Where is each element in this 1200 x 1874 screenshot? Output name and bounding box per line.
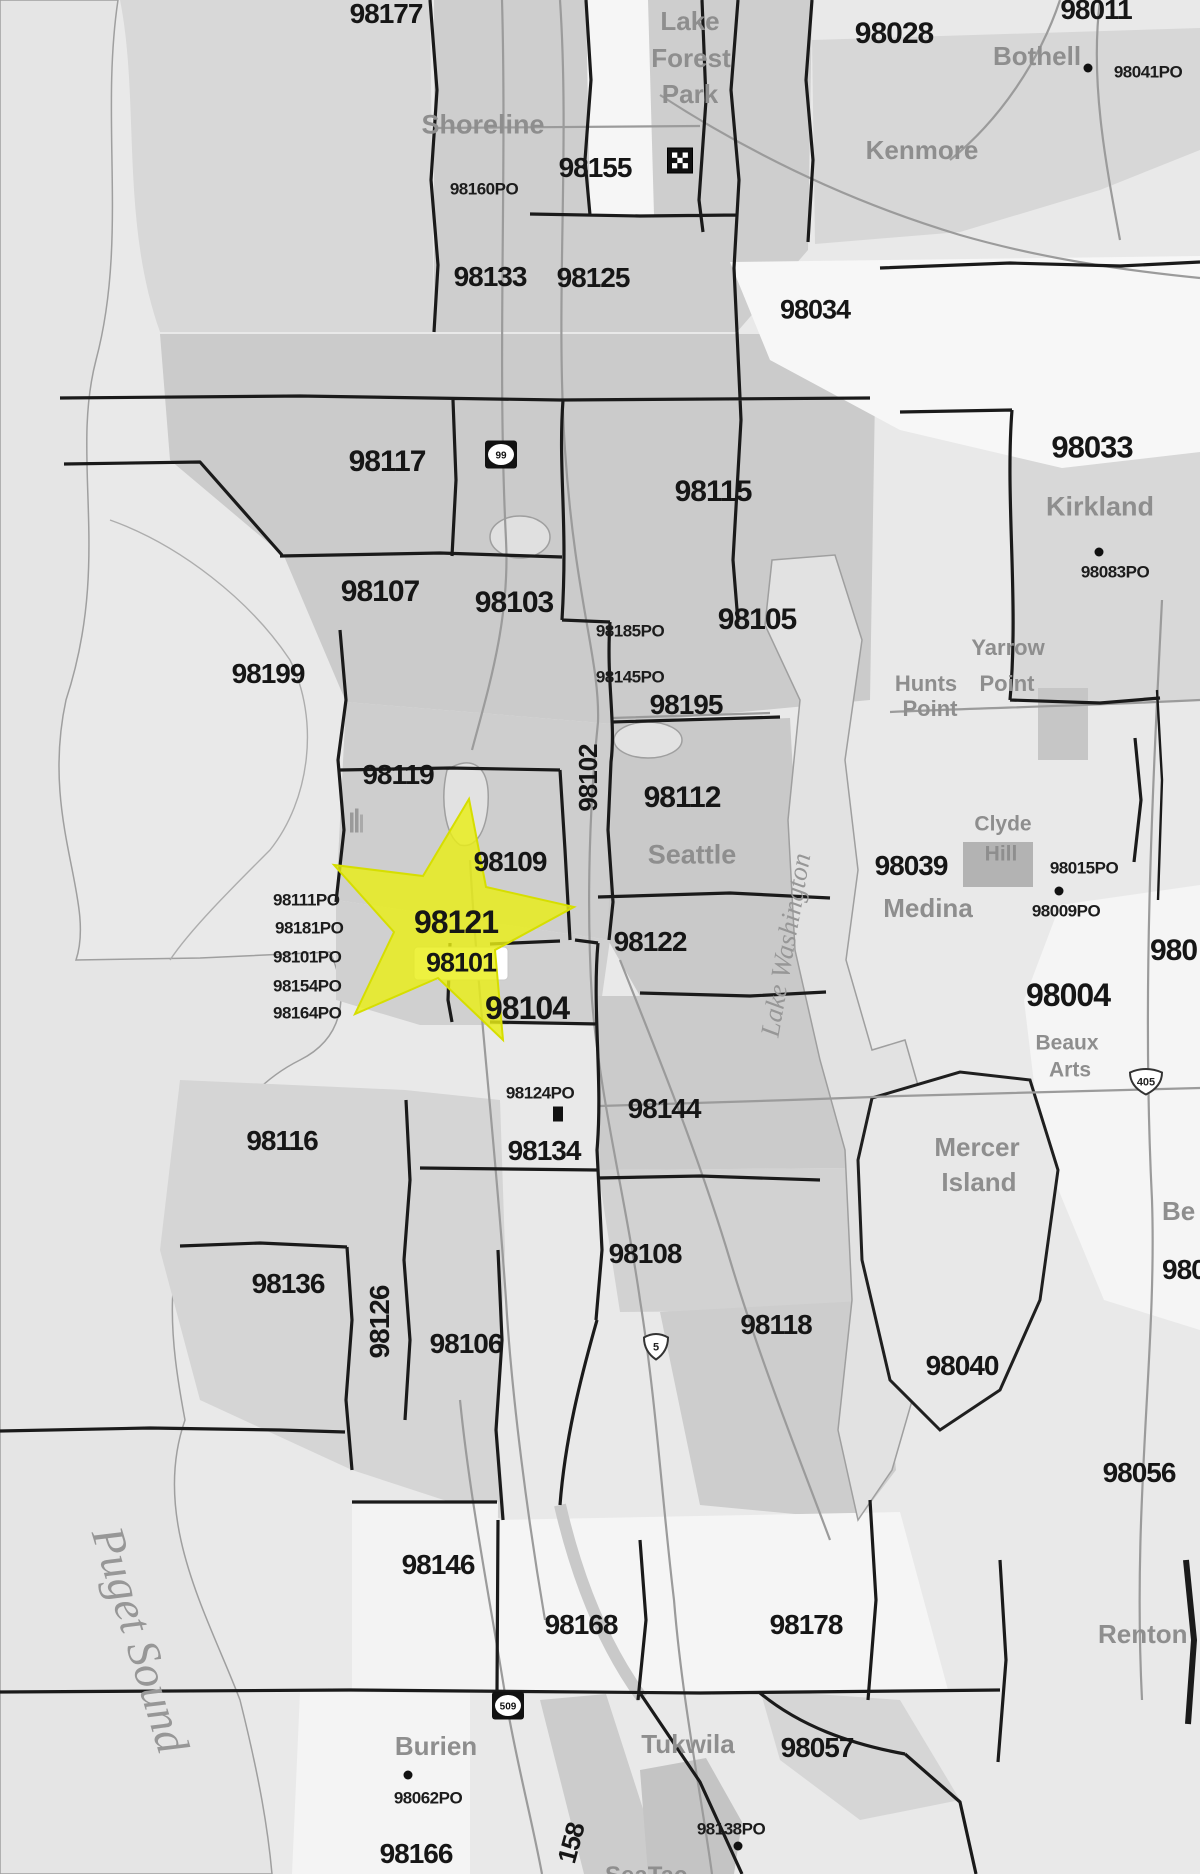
city-label: Shoreline [421, 112, 544, 139]
zip-label: 98028 [855, 19, 933, 49]
zip-label: 98033 [1051, 432, 1132, 463]
zip-label: 98119 [362, 761, 433, 789]
city-label: Tukwila [641, 1731, 734, 1757]
zip-label: 98146 [402, 1551, 475, 1579]
zip-code-map: const data = JSON.parse(document.getElem… [0, 0, 1200, 1874]
zip-label: 980 [1150, 936, 1197, 966]
zip-label: 98101 [426, 950, 496, 977]
zip-label: 98121 [414, 906, 498, 938]
zip-label: 98125 [557, 264, 630, 292]
zip-label: 98126 [366, 1286, 394, 1359]
zip-label: 98004 [1026, 979, 1110, 1011]
city-label: Park [662, 81, 718, 107]
po-label: 98185PO [596, 623, 664, 640]
checkered-route-marker-icon [667, 148, 693, 179]
zip-label: 98144 [628, 1095, 701, 1123]
city-label: Kirkland [1046, 494, 1154, 521]
city-label: Island [941, 1169, 1016, 1195]
city-label: Mercer [934, 1134, 1019, 1160]
interstate-5-shield-icon: 5 [642, 1331, 670, 1366]
svg-text:5: 5 [653, 1342, 659, 1354]
zip-label: 98040 [926, 1352, 999, 1380]
zip-label: 98177 [350, 0, 423, 28]
po-location-marker [1055, 887, 1064, 896]
city-label: SeaTac [605, 1864, 687, 1874]
po-label: 98154PO [273, 978, 341, 995]
zip-label: 98056 [1103, 1459, 1176, 1487]
po-location-marker [734, 1842, 743, 1851]
zip-label: 980 [1162, 1256, 1200, 1284]
zip-label: 98118 [740, 1311, 811, 1339]
zip-label: 98106 [430, 1330, 503, 1358]
union-bay [614, 722, 682, 758]
po-label: 98164PO [273, 1005, 341, 1022]
zip-label: 98117 [349, 447, 426, 477]
zip-label: 98115 [675, 477, 752, 507]
zip-label: 98122 [614, 928, 687, 956]
state-route-509-shield-icon: 509 [491, 1691, 525, 1726]
po-location-marker [1095, 548, 1104, 557]
city-label: Renton [1098, 1621, 1188, 1647]
city-label: Kenmore [866, 137, 979, 163]
po-label: 98009PO [1032, 903, 1100, 920]
city-label: Point [980, 673, 1035, 695]
state-route-99-shield-icon: 99 [484, 440, 518, 475]
svg-text:99: 99 [495, 451, 507, 462]
zip-label: 98168 [545, 1611, 618, 1639]
po-location-marker [404, 1771, 413, 1780]
zip-label: 98166 [380, 1840, 453, 1868]
po-location-marker [553, 1107, 563, 1122]
zip-label: 98109 [474, 848, 547, 876]
zip-label: 98011 [1060, 0, 1131, 24]
zip-label: 98155 [559, 154, 632, 182]
po-label: 98015PO [1050, 860, 1118, 877]
landmark-building-icon [348, 809, 364, 840]
svg-text:405: 405 [1137, 1077, 1155, 1089]
zip-label: 98102 [575, 744, 601, 811]
zip-label: 98057 [781, 1734, 854, 1762]
city-label: Hunts [895, 673, 957, 695]
zip-label: 98112 [644, 783, 721, 813]
city-label: Point [903, 698, 958, 720]
zip-label: 98136 [252, 1270, 325, 1298]
po-label: 98145PO [596, 669, 664, 686]
city-label: Beaux [1035, 1033, 1098, 1054]
zip-label: 98108 [609, 1240, 682, 1268]
po-label: 98181PO [275, 920, 343, 937]
zip-label: 98199 [232, 660, 305, 688]
zip-label: 98107 [341, 577, 419, 607]
po-label: 98124PO [506, 1085, 574, 1102]
po-label: 98041PO [1114, 64, 1182, 81]
city-label: Hill [985, 844, 1018, 865]
green-lake [490, 516, 550, 558]
city-label: Lake [660, 8, 719, 34]
zip-label: 98105 [718, 605, 796, 635]
zip-label: 98133 [454, 263, 527, 291]
city-label: Medina [883, 895, 973, 921]
zip-label: 98034 [780, 297, 850, 324]
city-label: Arts [1049, 1060, 1091, 1081]
city-label: Be [1162, 1198, 1195, 1224]
zip-label: 98134 [508, 1137, 581, 1165]
interstate-405-shield-icon: 405 [1128, 1066, 1164, 1101]
svg-text:509: 509 [500, 1702, 517, 1713]
zip-label: 98039 [875, 852, 948, 880]
city-label: Bothell [993, 43, 1081, 69]
po-label: 98083PO [1081, 564, 1149, 581]
city-label: Burien [395, 1733, 477, 1759]
po-location-marker [1084, 64, 1093, 73]
po-label: 98111PO [273, 892, 339, 909]
zip-label: 98103 [475, 588, 553, 618]
city-label: Clyde [974, 814, 1031, 835]
zip-label: 98116 [246, 1127, 317, 1155]
city-label: Yarrow [971, 637, 1044, 659]
po-label: 98062PO [394, 1790, 462, 1807]
zip-label: 98104 [485, 992, 569, 1024]
zip-label: 98195 [650, 691, 723, 719]
po-label: 98101PO [273, 949, 341, 966]
po-label: 98138PO [697, 1821, 765, 1838]
zip-label: 98178 [770, 1611, 843, 1639]
city-label: Forest [651, 45, 730, 71]
city-label: Seattle [648, 842, 737, 869]
po-label: 98160PO [450, 181, 518, 198]
